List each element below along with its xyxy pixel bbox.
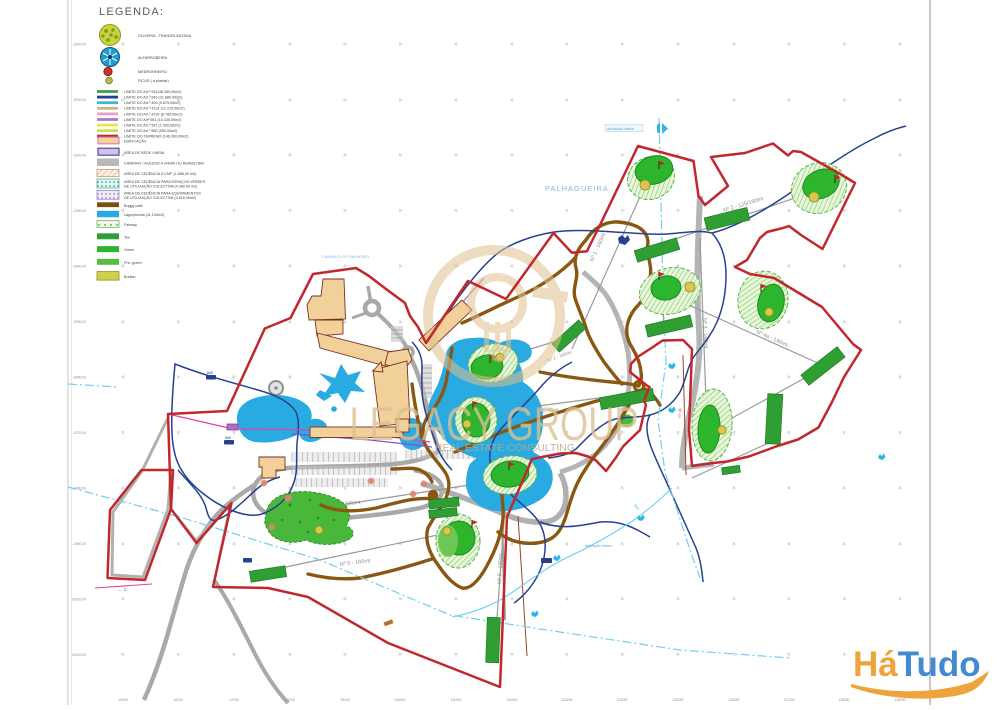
svg-text:LIMITE DO Art.º 550 (950,00m2): LIMITE DO Art.º 550 (950,00m2) <box>124 129 177 133</box>
svg-text:17200: 17200 <box>229 698 239 702</box>
svg-text:112200: 112200 <box>506 698 517 702</box>
svg-text:LIMITE DO Art.º 531(48.280,00m: LIMITE DO Art.º 531(48.280,00m2) <box>124 90 182 94</box>
svg-text:EDIFICAÇÃO: EDIFICAÇÃO <box>124 139 147 144</box>
svg-text:119200: 119200 <box>894 698 905 702</box>
svg-text:PALHAGUEIRA: PALHAGUEIRA <box>545 184 609 193</box>
svg-text:Lago/piscina (11.100m3): Lago/piscina (11.100m3) <box>124 213 164 217</box>
svg-text:-2090.00: -2090.00 <box>73 542 86 546</box>
svg-text:derivação ribeira: derivação ribeira <box>585 544 612 548</box>
svg-text:116200: 116200 <box>728 698 739 702</box>
svg-text:16200: 16200 <box>173 698 183 702</box>
svg-text:DE UTILIZAÇÃO COLECTIVA (4.380: DE UTILIZAÇÃO COLECTIVA (4.380,00 m2) <box>124 184 197 189</box>
svg-text:BAK: BAK <box>207 371 214 375</box>
svg-text:Green: Green <box>124 248 134 252</box>
svg-text:LIMITE DO TERRENO (146.300,00m: LIMITE DO TERRENO (146.300,00m2) <box>124 135 188 139</box>
svg-text:LEGENDA:: LEGENDA: <box>99 6 164 18</box>
svg-text:-2000.00: -2000.00 <box>73 43 86 47</box>
svg-text:Nº 4b: Nº 4b <box>677 407 682 418</box>
svg-text:derivação ribeira: derivação ribeira <box>607 127 634 131</box>
svg-text:LIMITE DO Artº 551 (10.435,00m: LIMITE DO Artº 551 (10.435,00m2) <box>124 118 182 122</box>
svg-text:118200: 118200 <box>838 698 849 702</box>
svg-text:← 1: ← 1 <box>118 587 127 592</box>
svg-text:115200: 115200 <box>672 698 683 702</box>
svg-text:-2040.00: -2040.00 <box>73 265 86 269</box>
svg-text:114200: 114200 <box>616 698 627 702</box>
svg-text:LIMITE DO Art.º 549 (31.880,00: LIMITE DO Art.º 549 (31.880,00m2) <box>124 96 183 100</box>
svg-text:AREA DE CEDÊNCIA PARA EQUIPAME: AREA DE CEDÊNCIA PARA EQUIPAMENTOS <box>124 190 201 195</box>
svg-text:DE UTILIZAÇÃO COLECTIVA (3.615: DE UTILIZAÇÃO COLECTIVA (3.615,00m2) <box>124 195 196 200</box>
svg-text:-2050.00: -2050.00 <box>73 320 86 324</box>
svg-text:CAMINHO / ACESSO A CRIAR OU RE: CAMINHO / ACESSO A CRIAR OU REABILITAR <box>124 162 204 166</box>
svg-text:Fairway: Fairway <box>124 223 137 227</box>
svg-text:-2030.00: -2030.00 <box>73 209 86 213</box>
svg-text:15200: 15200 <box>118 698 128 702</box>
svg-text:-20100.00: -20100.00 <box>71 598 86 602</box>
svg-text:-2010.00: -2010.00 <box>73 98 86 102</box>
svg-text:LIMITE DO Art.º 4192 (8.785,00: LIMITE DO Art.º 4192 (8.785,00m2) <box>124 112 183 116</box>
svg-text:FICUS ( a plantar): FICUS ( a plantar) <box>138 79 170 83</box>
svg-text:19200: 19200 <box>340 698 350 702</box>
svg-text:117200: 117200 <box>783 698 794 702</box>
svg-text:Tee: Tee <box>124 235 130 239</box>
svg-text:111200: 111200 <box>451 698 462 702</box>
svg-text:-2020.00: -2020.00 <box>73 154 86 158</box>
svg-text:AREA DE CEDÊNCIA À CMF (1.888,: AREA DE CEDÊNCIA À CMF (1.888,00 m2) <box>124 171 196 176</box>
svg-text:BAK: BAK <box>225 436 232 440</box>
svg-text:LIMITE DO Art.º 4131 (12.215,0: LIMITE DO Art.º 4131 (12.215,00m2) <box>124 107 185 111</box>
svg-text:110200: 110200 <box>394 698 405 702</box>
svg-text:LIMITE DO Art.º 541 (1.000,00m: LIMITE DO Art.º 541 (1.000,00m2) <box>124 124 180 128</box>
svg-text:Pre--green: Pre--green <box>124 261 142 265</box>
svg-text:MEDRONHEIRO: MEDRONHEIRO <box>138 70 167 74</box>
svg-text:LIMITE DO Art.º 490 (9.875,00m: LIMITE DO Art.º 490 (9.875,00m2) <box>124 101 180 105</box>
svg-text:113200: 113200 <box>561 698 572 702</box>
svg-text:ALFARROBEIRA: ALFARROBEIRA <box>138 56 168 60</box>
svg-text:-2070.00: -2070.00 <box>73 431 86 435</box>
svg-text:ÁREA DE REDE VIARIA: ÁREA DE REDE VIARIA <box>124 151 165 155</box>
svg-text:OLIVEIRA - TRANSPLANTADA: OLIVEIRA - TRANSPLANTADA <box>138 34 192 38</box>
svg-text:REAL ESTATE CONSULTING: REAL ESTATE CONSULTING <box>435 442 575 454</box>
svg-text:HáTudo: HáTudo <box>853 645 981 684</box>
svg-text:Buggy path: Buggy path <box>124 204 143 208</box>
svg-text:-2060.00: -2060.00 <box>73 376 86 380</box>
svg-text:AREA DE CEDÊNCIA PARA ESPAÇOS: AREA DE CEDÊNCIA PARA ESPAÇOS VERDES <box>124 179 206 184</box>
svg-text:-20110.00: -20110.00 <box>71 653 86 657</box>
svg-text:Bunker: Bunker <box>124 275 136 279</box>
svg-text:CAMINHO DO PALHEIRO: CAMINHO DO PALHEIRO <box>322 254 369 259</box>
